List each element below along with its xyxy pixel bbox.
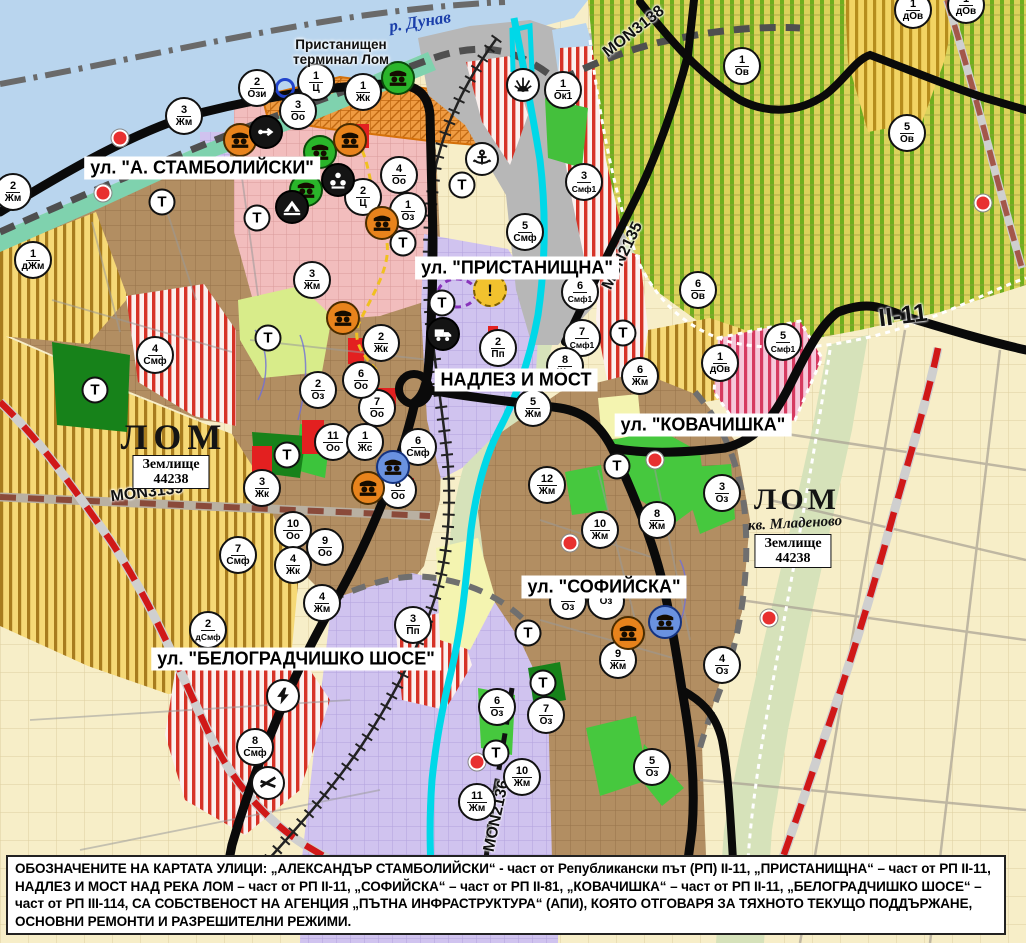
people-icon	[321, 163, 355, 197]
monument-icon	[376, 450, 410, 484]
zone-number: 6	[573, 280, 587, 293]
zone-marker: 5Смф	[506, 213, 544, 251]
zone-code: Ок1	[554, 91, 572, 103]
map-overlay: 2Ози1Ц1Жк3Оо3Жм1Ок12Жм1дЖм4Оо1Оз2Ц3Смф15…	[0, 0, 1026, 943]
zone-number: 7	[231, 543, 245, 556]
zone-code: Пп	[491, 349, 504, 361]
zone-marker: 3Оо	[279, 92, 317, 130]
zone-code: Жм	[514, 778, 530, 790]
caption-segment: – част от РП II-11,	[666, 879, 787, 894]
caption-segment: ОБОЗНАЧЕНИТЕ НА КАРТАТА УЛИЦИ: „АЛЕКСАНД…	[15, 861, 496, 876]
zone-number: 5	[526, 396, 540, 409]
zone-number: 8	[650, 508, 664, 521]
zone-code: Смф	[406, 448, 429, 460]
zone-marker: 4Оз	[703, 646, 741, 684]
zone-number: 4	[392, 163, 406, 176]
zone-code: Оо	[286, 531, 300, 543]
zone-marker: 2Пп	[479, 329, 517, 367]
transport-terminal-marker: Т	[82, 377, 109, 404]
poi-dot	[562, 535, 579, 552]
poi-dot	[95, 185, 112, 202]
zone-marker: 6Оз	[478, 688, 516, 726]
zone-code: Оо	[354, 381, 368, 393]
zone-marker: 3Смф1	[565, 163, 603, 201]
zone-code: Ц	[359, 198, 366, 210]
zone-number: 7	[539, 703, 553, 716]
zone-number: 5	[900, 121, 914, 134]
zone-code: Смф	[243, 748, 266, 760]
street-label-3: ул. "КОВАЧИШКА"	[615, 414, 792, 437]
transport-terminal-marker: Т	[149, 189, 176, 216]
monument-icon	[648, 605, 682, 639]
caption-segment: – част от РП II-11,	[874, 861, 991, 876]
zone-code: Жк	[255, 489, 269, 501]
monument-icon	[611, 616, 645, 650]
zone-number: 7	[575, 326, 589, 339]
street-label-4: ул. "СОФИЙСКА"	[521, 576, 686, 599]
zemlishte-label-2: Землище 44238	[754, 534, 831, 568]
zone-marker: 8Смф	[236, 728, 274, 766]
zone-marker: 5Ов	[888, 114, 926, 152]
port-terminal-label: Пристанищен терминал Лом	[293, 37, 389, 67]
zone-code: Жм	[314, 604, 330, 616]
zone-code: Смф	[226, 556, 249, 568]
zone-marker: 12Жм	[528, 466, 566, 504]
zone-number: 5	[518, 220, 532, 233]
zone-marker: 5Смф1	[764, 323, 802, 361]
poi-dot	[647, 452, 664, 469]
zone-code: Ов	[900, 134, 914, 146]
zone-code: Жм	[539, 486, 555, 498]
zone-marker: 8Жм	[638, 501, 676, 539]
zone-code: Оз	[716, 494, 729, 506]
zone-marker: 7Оз	[527, 696, 565, 734]
caption-segment: „ПРИСТАНИЩНА“	[754, 861, 874, 876]
zone-number: 1	[358, 430, 372, 443]
zone-code: Смф1	[771, 343, 795, 355]
zone-number: 2	[201, 618, 215, 631]
zone-code: Жм	[5, 193, 21, 205]
zone-marker: 4Оо	[380, 156, 418, 194]
transport-terminal-marker: Т	[255, 325, 282, 352]
zone-number: 1	[906, 0, 920, 11]
zone-number: 11	[467, 790, 487, 803]
zone-code: Оо	[326, 443, 340, 455]
zone-marker: 10Жм	[581, 511, 619, 549]
caption-segment: НАДЛЕЗ И МОСТ НАД РЕКА ЛОМ	[15, 879, 234, 894]
zone-number: 5	[645, 755, 659, 768]
monument-icon	[365, 206, 399, 240]
zone-code: Жк	[286, 566, 300, 578]
transport-terminal-marker: Т	[515, 620, 542, 647]
monument-icon	[333, 123, 367, 157]
zone-marker: 1дОв	[701, 344, 739, 382]
zone-number: 10	[283, 518, 303, 531]
poi-dot	[112, 130, 129, 147]
poi-dot	[761, 610, 778, 627]
zone-number: 11	[323, 430, 343, 443]
zone-code: Оз	[646, 768, 659, 780]
zone-code: Смф1	[572, 183, 596, 195]
street-label-0: ул. "А. СТАМБОЛИЙСКИ"	[84, 157, 320, 180]
zone-code: Оз	[540, 716, 553, 728]
zone-code: Оо	[291, 112, 305, 124]
zone-number: 10	[590, 518, 610, 531]
zone-code: Оз	[402, 212, 415, 224]
zone-marker: 2дСмф	[189, 611, 227, 649]
transport-terminal-marker: Т	[449, 172, 476, 199]
caption-segment: СА СОБСТВЕНОСТ НА АГЕНЦИЯ „ПЪТНА ИНФРАСТ…	[15, 896, 972, 929]
zone-code: Жм	[649, 521, 665, 533]
caption-segment: – част от РП II-81,	[445, 879, 566, 894]
zone-marker: 5Оз	[633, 748, 671, 786]
zone-code: Жм	[176, 117, 192, 129]
caption-segment: „КОВАЧИШКА“	[567, 879, 667, 894]
zone-number: 7	[370, 396, 384, 409]
zone-number: 1	[309, 70, 323, 83]
zone-number: 10	[512, 765, 532, 778]
zone-number: 5	[776, 330, 790, 343]
zone-marker: 1Жс	[346, 423, 384, 461]
zone-code: Жк	[356, 93, 370, 105]
zone-code: Жм	[304, 281, 320, 293]
zone-number: 2	[491, 336, 505, 349]
zone-number: 2	[356, 185, 370, 198]
zone-marker: 1дОв	[894, 0, 932, 29]
zone-number: 6	[411, 435, 425, 448]
truck-icon	[426, 317, 460, 351]
street-label-5: ул. "БЕЛОГРАДЧИШКО ШОСЕ"	[151, 648, 441, 671]
zone-number: 2	[374, 331, 388, 344]
zone-marker: 2Жк	[362, 324, 400, 362]
zone-number: 3	[255, 476, 269, 489]
zone-code: Жк	[374, 344, 388, 356]
zemlishte-label: Землище 44238	[132, 455, 209, 489]
zone-number: 1	[735, 54, 749, 67]
arrow-icon	[249, 115, 283, 149]
zone-number: 6	[633, 364, 647, 377]
caption-segment: „СОФИЙСКА“	[354, 879, 445, 894]
zone-marker: 4Смф	[136, 336, 174, 374]
zone-number: 9	[318, 535, 332, 548]
zone-number: 4	[148, 343, 162, 356]
street-label-2: НАДЛЕЗ И МОСТ	[435, 369, 598, 392]
anchor-icon	[465, 142, 499, 176]
zone-number: 2	[311, 378, 325, 391]
transport-terminal-marker: Т	[610, 320, 637, 347]
zone-code: Смф	[513, 233, 536, 245]
zone-number: 4	[715, 653, 729, 666]
zone-marker: 1Жк	[344, 73, 382, 111]
map-caption: ОБОЗНАЧЕНИТЕ НА КАРТАТА УЛИЦИ: „АЛЕКСАНД…	[6, 855, 1006, 935]
zone-code: Смф	[143, 356, 166, 368]
zone-marker: 1Ов	[723, 47, 761, 85]
zone-code: Ози	[248, 89, 267, 101]
zone-number: 8	[248, 735, 262, 748]
zone-number: 2	[250, 76, 264, 89]
zone-marker: 1дЖм	[14, 241, 52, 279]
zone-code: дСмф	[195, 631, 220, 643]
river-danube-label: р. Дунав	[388, 7, 452, 36]
road-label-ii-11: II-11	[877, 299, 929, 334]
zone-marker: 10Жм	[503, 758, 541, 796]
zone-marker: 1Ок1	[544, 71, 582, 109]
zone-marker: 3Пп	[394, 606, 432, 644]
lightning-icon	[266, 679, 300, 713]
zone-code: Оз	[491, 708, 504, 720]
zone-code: Оо	[391, 491, 405, 503]
zone-code: Пп	[406, 626, 419, 638]
zone-marker: 3Жк	[243, 469, 281, 507]
cave-icon	[275, 190, 309, 224]
kvartal-label: кв. Младеново	[747, 513, 842, 535]
zone-code: Оз	[716, 666, 729, 678]
zone-code: Жс	[358, 443, 373, 455]
lom-city-label: ЛОМ	[121, 416, 228, 458]
zone-number: 1	[356, 80, 370, 93]
zone-marker: 2Оз	[299, 371, 337, 409]
zone-code: Жм	[632, 377, 648, 389]
caption-segment: - част от Републикански път (РП) II-11,	[496, 861, 754, 876]
zone-code: Ц	[312, 83, 319, 95]
transport-terminal-marker: Т	[530, 670, 557, 697]
zone-number: 3	[406, 613, 420, 626]
zone-code: Оо	[318, 548, 332, 560]
zone-number: 2	[6, 180, 20, 193]
svg-text:!: !	[487, 281, 493, 300]
zone-code: Оо	[392, 176, 406, 188]
transport-terminal-marker: Т	[244, 205, 271, 232]
zone-marker: 4Жк	[274, 546, 312, 584]
zone-code: Жм	[610, 661, 626, 673]
zone-number: 1	[401, 199, 415, 212]
barrier-icon	[251, 766, 285, 800]
zone-marker: 2Ози	[238, 69, 276, 107]
zone-number: 3	[305, 268, 319, 281]
lom-mladenovo-label: ЛОМ	[754, 483, 840, 517]
zone-code: дОв	[903, 11, 923, 23]
zone-number: 4	[315, 591, 329, 604]
zone-number: 6	[691, 278, 705, 291]
zone-number: 3	[577, 170, 591, 183]
zone-marker: 6Оо	[342, 361, 380, 399]
zone-number: 6	[354, 368, 368, 381]
zone-code: Оз	[562, 602, 575, 614]
zone-code: Жм	[592, 531, 608, 543]
zone-marker: 6Жм	[621, 357, 659, 395]
zone-code: Ов	[691, 291, 705, 303]
zone-number: 8	[558, 354, 572, 367]
caption-segment: – част от РП II-11,	[234, 879, 355, 894]
zone-code: Оз	[312, 391, 325, 403]
zone-number: 6	[490, 695, 504, 708]
zone-marker: 2Жм	[0, 173, 32, 211]
street-label-1: ул. "ПРИСТАНИЩНА"	[415, 257, 619, 280]
road-label-mon3138: MON3138	[600, 2, 669, 61]
zone-marker: 11Жм	[458, 783, 496, 821]
zone-marker: 7Смф	[219, 536, 257, 574]
zone-marker: 6Ов	[679, 271, 717, 309]
fan-icon	[506, 68, 540, 102]
transport-terminal-marker: Т	[483, 740, 510, 767]
zone-number: 4	[286, 553, 300, 566]
transport-terminal-marker: Т	[274, 442, 301, 469]
zone-code: Оо	[370, 409, 384, 421]
poi-dot	[975, 195, 992, 212]
zone-marker: 3Оз	[703, 474, 741, 512]
map-viewport: 2Ози1Ц1Жк3Оо3Жм1Ок12Жм1дЖм4Оо1Оз2Ц3Смф15…	[0, 0, 1026, 943]
zone-code: Жм	[525, 409, 541, 421]
zone-number: 1	[713, 351, 727, 364]
zone-code: дОв	[956, 6, 976, 18]
zone-number: 1	[556, 78, 570, 91]
zone-marker: 3Жм	[293, 261, 331, 299]
zone-marker: 1дОв	[947, 0, 985, 24]
zone-number: 1	[26, 248, 40, 261]
transport-terminal-marker: Т	[604, 453, 631, 480]
monument-icon	[326, 301, 360, 335]
caption-segment: „БЕЛОГРАДЧИШКО ШОСЕ“	[787, 879, 970, 894]
zone-number: 3	[177, 104, 191, 117]
transport-terminal-marker: Т	[429, 290, 456, 317]
zone-number: 3	[291, 99, 305, 112]
zone-number: 3	[715, 481, 729, 494]
zone-code: дОв	[710, 364, 730, 376]
zone-marker: 9Оо	[306, 528, 344, 566]
zone-marker: 4Жм	[303, 584, 341, 622]
zone-marker: 3Жм	[165, 97, 203, 135]
zone-code: Ов	[735, 67, 749, 79]
zone-code: Смф1	[568, 293, 592, 305]
zone-number: 12	[537, 473, 557, 486]
zone-code: дЖм	[22, 261, 45, 273]
zone-code: Жм	[469, 803, 485, 815]
zone-marker: 5Жм	[514, 389, 552, 427]
